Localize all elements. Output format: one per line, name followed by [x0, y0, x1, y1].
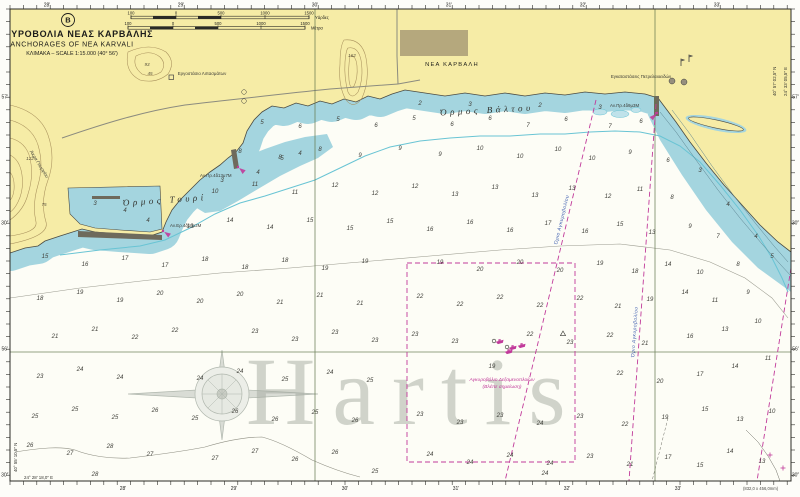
sounding: 15 [307, 218, 314, 224]
sounding: 25 [366, 378, 374, 384]
sounding: 23 [251, 329, 259, 335]
sounding: 28 [91, 472, 99, 478]
sounding: 12 [605, 194, 612, 200]
sounding: 23 [411, 332, 419, 338]
sounding: 26 [231, 409, 239, 415]
sounding: 16 [687, 334, 694, 340]
sounding: 21 [614, 304, 622, 310]
corner-coord-bl-lat: 40° 55′ 10,5″ N [13, 443, 18, 472]
sounding: 22 [576, 296, 584, 302]
sounding: 14 [682, 290, 689, 296]
chart-title-greek: ΑΓΚΥΡΟΒΟΛΙΑ ΝΕΑΣ ΚΑΡΒΑΛΗΣ [0, 29, 153, 39]
bottom-graticule-label: 30' [342, 486, 349, 492]
scalebar-meters-tick: 1000 [256, 21, 266, 26]
anchorage-note-line2: (Βλέπε σημείωση) [483, 383, 522, 390]
sounding: 10 [212, 189, 219, 195]
top-graticule-label: 33' [714, 3, 721, 9]
sounding: 15 [42, 254, 49, 260]
sounding: 25 [31, 414, 39, 420]
sounding: 21 [626, 462, 634, 468]
sounding: 2 [417, 101, 422, 107]
top-graticule-label: 31' [446, 3, 453, 9]
corner-coord-tr-lon: 24° 33′ 05,5″ E [783, 67, 788, 96]
sounding: 20 [516, 260, 524, 266]
sounding: 11 [292, 190, 298, 196]
sounding: 10 [477, 146, 484, 152]
sounding: 14 [267, 225, 274, 231]
spot-height: 75 [41, 202, 47, 207]
sounding: 26 [271, 417, 279, 423]
sounding: 28 [106, 444, 114, 450]
sounding: 25 [191, 416, 199, 422]
sounding: 14 [727, 449, 734, 455]
scalebar-meters-tick: 100 [125, 21, 133, 26]
sounding: 25 [311, 410, 319, 416]
sounding: 13 [649, 230, 656, 236]
bottom-graticule-label: 32' [564, 486, 571, 492]
right-graticule-label: 30″ [792, 221, 800, 227]
sounding: 19 [117, 298, 124, 304]
sounding: 20 [556, 268, 564, 274]
sounding: 26 [151, 408, 159, 414]
sounding: 27 [211, 456, 219, 462]
sounding: 17 [162, 263, 169, 269]
sounding: 23 [451, 339, 459, 345]
sounding: 19 [597, 261, 604, 267]
sounding: 23 [331, 330, 339, 336]
sounding: 10 [517, 154, 524, 160]
sounding: 23 [371, 338, 379, 344]
village-block [400, 30, 468, 56]
sounding: 23 [576, 414, 584, 420]
sounding: 24 [546, 461, 554, 467]
tank-circle-icon [242, 90, 247, 95]
nautical-chart-page: Hartis Όριο Αγκυροβολίου Όριο Αγκυροβολί… [0, 0, 800, 497]
sounding: 18 [632, 269, 639, 275]
sounding: 10 [769, 409, 776, 415]
sounding: 24 [236, 369, 244, 375]
sounding: 13 [532, 193, 539, 199]
sounding: 11 [765, 356, 771, 362]
corner-coord-tr-lat: 40° 57′ 02,5″ N [772, 67, 777, 96]
sounding: 20 [156, 291, 164, 297]
sounding: 17 [545, 221, 552, 227]
scalebar-meters-tick: 500 [215, 21, 223, 26]
spot-height: 45 [147, 71, 153, 76]
sounding: 15 [387, 219, 394, 225]
sounding: 22 [131, 335, 139, 341]
sounding: 24 [426, 452, 434, 458]
chart-badge-letter: B [65, 16, 71, 25]
inner-pier [92, 196, 120, 199]
bottom-graticule-label: 31' [453, 486, 460, 492]
anchorage-note-line1: Αγκυροβόλιο Δεξαμενοπλοίων [468, 376, 535, 383]
chart-title-english: ANCHORAGES OF NEA KARVALI [10, 42, 133, 49]
sounding: 19 [437, 260, 444, 266]
sounding: 26 [291, 457, 299, 463]
sounding: 22 [616, 371, 624, 377]
sounding: 23 [566, 340, 574, 346]
sounding: 10 [755, 319, 762, 325]
spot-height: 162 [348, 53, 356, 58]
top-graticule-label: 28' [44, 3, 51, 9]
sounding: 23 [496, 413, 504, 419]
sounding: 17 [697, 372, 704, 378]
sounding: 26 [351, 418, 359, 424]
sounding: 23 [291, 337, 299, 343]
sounding: 18 [37, 296, 44, 302]
sounding: 12 [412, 184, 419, 190]
sounding: 19 [662, 415, 669, 421]
sounding: 25 [71, 407, 79, 413]
sounding: 27 [66, 451, 74, 457]
sounding: 17 [122, 256, 129, 262]
scalebar-yards-unit: Υάρδες [315, 15, 329, 20]
sounding: 26 [26, 443, 34, 449]
sounding: 16 [427, 227, 434, 233]
sounding: 19 [362, 259, 369, 265]
chart-scale-note: ΚΛΙΜΑΚΑ – SCALE 1:15.000 (40° 56') [26, 51, 118, 57]
sounding: 13 [759, 459, 766, 465]
top-graticule-label: 32' [580, 3, 587, 9]
light-dot [237, 166, 239, 168]
chart-canvas: Hartis Όριο Αγκυροβολίου Όριο Αγκυροβολί… [0, 0, 800, 497]
sounding: 25 [111, 415, 119, 421]
sounding: 21 [641, 341, 649, 347]
sounding: 18 [242, 265, 249, 271]
light-dot [656, 112, 658, 114]
bottom-graticule-label: 29' [231, 486, 238, 492]
sounding: 25 [281, 377, 289, 383]
sounding: 15 [702, 407, 709, 413]
left-graticule-label: 56' [2, 347, 9, 353]
sounding: 24 [506, 453, 514, 459]
sounding: 24 [116, 375, 124, 381]
sounding: 19 [322, 266, 329, 272]
left-graticule-label: 30″ [1, 221, 9, 227]
sounding: 10 [697, 270, 704, 276]
sounding: 15 [697, 463, 704, 469]
sounding: 22 [526, 332, 534, 338]
sounding: 22 [171, 328, 179, 334]
sounding: 11 [712, 298, 718, 304]
left-graticule-label: 57' [2, 95, 9, 101]
sounding: 13 [569, 186, 576, 192]
sounding: 27 [146, 452, 154, 458]
factory-label: Εργοστάσιο Λιπασμάτων [178, 71, 227, 76]
sounding: 15 [347, 226, 354, 232]
sounding: 24 [541, 471, 549, 477]
sounding: 21 [356, 301, 364, 307]
bottom-graticule-label: 33' [675, 486, 682, 492]
scalebar-yards-tick: 1500 [304, 10, 314, 15]
sounding: 27 [251, 449, 259, 455]
sounding: 19 [489, 364, 496, 370]
sounding: 24 [326, 370, 334, 376]
sounding: 20 [236, 292, 244, 298]
sounding: 10 [589, 156, 596, 162]
sounding: 15 [617, 222, 624, 228]
sounding: 18 [202, 257, 209, 263]
sounding: 11 [637, 187, 643, 193]
sounding: 16 [582, 229, 589, 235]
sounding: 21 [276, 300, 284, 306]
sounding: 21 [316, 293, 324, 299]
sounding: 20 [476, 267, 484, 273]
sounding: 21 [51, 334, 59, 340]
village-label: ΝΕΑ ΚΑΡΒΑΛΗ [425, 62, 479, 68]
sounding: 23 [416, 412, 424, 418]
sounding: 2 [537, 103, 542, 109]
sounding: 23 [586, 454, 594, 460]
sounding: 24 [466, 460, 474, 466]
spot-height: 93 [144, 62, 150, 67]
sounding: 24 [76, 367, 84, 373]
sounding: 22 [536, 303, 544, 309]
sounding: 14 [665, 262, 672, 268]
oil-tank-icon [681, 79, 687, 85]
sounding: 13 [737, 417, 744, 423]
scalebar-meters-unit: Μέτρα [311, 26, 323, 31]
sounding: 20 [196, 299, 204, 305]
sounding: 16 [82, 262, 89, 268]
scalebar-yards-tick: 500 [218, 10, 226, 15]
scalebar-yards-tick: 100 [128, 10, 136, 15]
scalebar-meters-tick: 1500 [300, 21, 310, 26]
light-label: Αν.Πρ.4δ13μ7Μ [200, 173, 232, 178]
sounding: 10 [555, 147, 562, 153]
sounding: 13 [722, 327, 729, 333]
sounding: 13 [187, 224, 194, 230]
sounding: 12 [332, 183, 339, 189]
sounding: 18 [282, 258, 289, 264]
sounding: 16 [467, 220, 474, 226]
sounding: 16 [507, 228, 514, 234]
left-graticule-label: 30″ [1, 473, 9, 479]
sounding: 13 [492, 185, 499, 191]
sounding: 23 [456, 420, 464, 426]
oil-terminal-label: Εγκαταστάσεις Πετρελαιοειδών [611, 74, 672, 79]
scalebar-yards-tick: 1000 [260, 10, 270, 15]
sounding: 13 [452, 192, 459, 198]
sounding: 21 [91, 327, 99, 333]
sounding: 20 [656, 379, 664, 385]
tank-circle-icon [242, 99, 247, 104]
light-label: Αν.Πρ.4δ9μ3Μ [610, 103, 639, 108]
light-dot [162, 230, 164, 232]
sounding: 14 [227, 218, 234, 224]
sounding: 24 [536, 421, 544, 427]
sounding: 25 [371, 469, 379, 475]
sounding: 22 [496, 295, 504, 301]
sounding: 23 [36, 374, 44, 380]
sheet-dimensions-note: (832,0 x 456,0mm) [743, 486, 779, 491]
right-graticule-label: 56' [792, 347, 799, 353]
sounding: 19 [77, 290, 84, 296]
right-graticule-label: 30″ [792, 473, 800, 479]
corner-coord-bl-lon: 24° 28′ 18,0″ E [24, 475, 53, 480]
sounding: 22 [621, 422, 629, 428]
watermark-text: Hartis [246, 338, 583, 445]
sounding: 22 [606, 333, 614, 339]
sounding: 24 [196, 376, 204, 382]
sounding: 12 [372, 191, 379, 197]
top-graticule-label: 29' [178, 3, 185, 9]
bottom-graticule-label: 28' [120, 486, 127, 492]
sounding: 11 [252, 182, 258, 188]
sounding: 22 [456, 302, 464, 308]
sounding: 26 [331, 450, 339, 456]
sounding: 17 [665, 455, 672, 461]
right-graticule-label: 57' [792, 95, 799, 101]
sounding: 22 [416, 294, 424, 300]
sounding: 14 [732, 364, 739, 370]
top-graticule-label: 30' [312, 3, 319, 9]
sounding: 19 [647, 297, 654, 303]
